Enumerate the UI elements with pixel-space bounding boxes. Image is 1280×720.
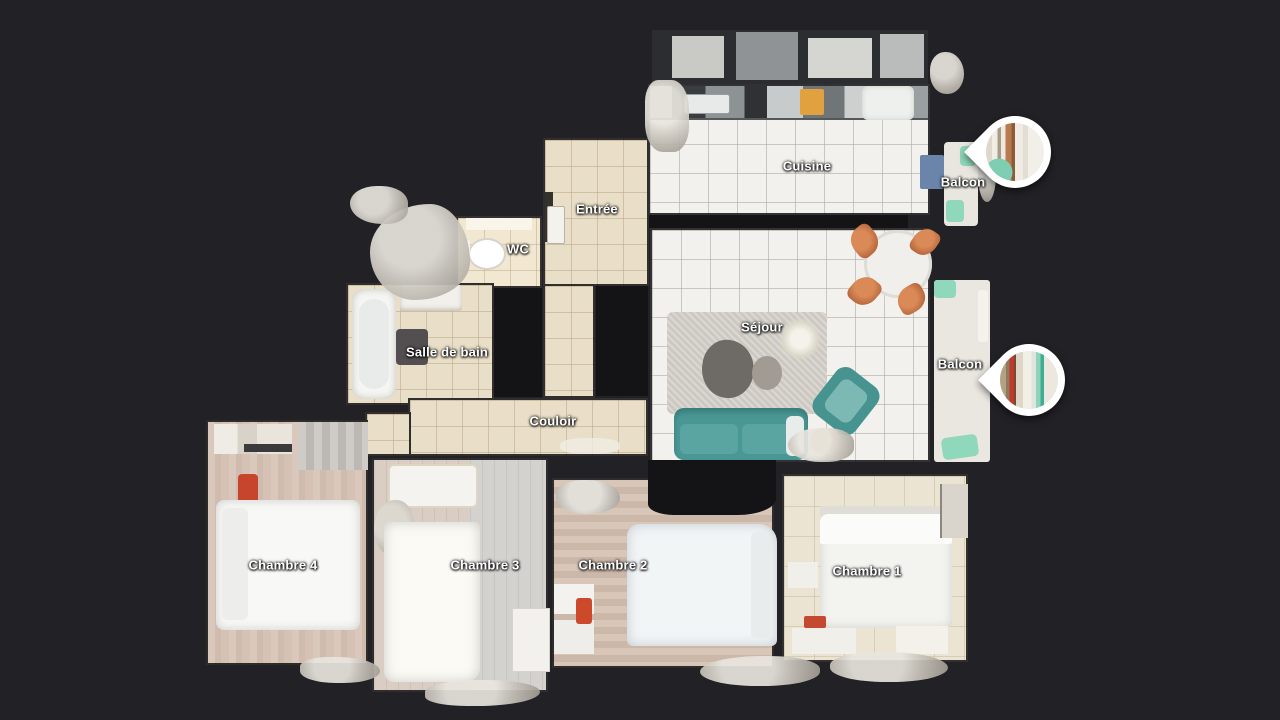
sofa-cushion xyxy=(742,424,792,454)
room-label-chambre-4: Chambre 4 xyxy=(249,558,318,573)
room-label-cuisine: Cuisine xyxy=(783,159,831,174)
bathtub-basin xyxy=(359,299,389,389)
room-label-salle-de-bain: Salle de bain xyxy=(406,345,488,360)
entry-mirror xyxy=(547,206,565,244)
room-couloir[interactable] xyxy=(408,398,648,456)
room-label-chambre-2: Chambre 2 xyxy=(579,558,648,573)
floorplan-viewport[interactable]: Cuisine Balcon Entrée WC Salle de bain S… xyxy=(0,0,1280,720)
balcony-mint-fragment xyxy=(946,200,964,222)
wardrobe xyxy=(298,422,368,470)
mesh-fragment xyxy=(788,428,854,462)
wall-hall-right xyxy=(596,282,648,396)
red-accent xyxy=(576,598,592,624)
balcony-mint-fragment xyxy=(934,280,956,298)
room-label-chambre-3: Chambre 3 xyxy=(451,558,520,573)
sofa-cushion xyxy=(680,424,738,454)
bed-pillow xyxy=(222,508,248,620)
hall-strip[interactable] xyxy=(543,286,595,398)
room-label-sejour: Séjour xyxy=(741,320,783,335)
room-label-chambre-1: Chambre 1 xyxy=(833,564,902,579)
wardrobe xyxy=(940,484,968,538)
floor-fragment xyxy=(560,438,620,454)
shelf-dark-streak xyxy=(244,444,292,452)
balcony-mint-fragment xyxy=(941,434,980,461)
mesh-fragment xyxy=(930,52,964,94)
nightstand xyxy=(788,562,818,588)
room-cuisine[interactable] xyxy=(648,84,930,215)
desk xyxy=(554,620,594,654)
toilet xyxy=(468,238,506,270)
mesh-fragment xyxy=(645,80,689,152)
room-label-balcon: Balcon xyxy=(938,357,983,372)
wall-sejour-chambre2 xyxy=(648,460,776,515)
bathtub xyxy=(352,289,396,399)
cabinet-block xyxy=(808,38,872,78)
mesh-fragment xyxy=(830,652,948,682)
cutting-board xyxy=(800,89,824,115)
mesh-fragment xyxy=(556,480,620,514)
pin-photo-thumbnail xyxy=(986,123,1044,181)
sofa xyxy=(674,408,808,460)
room-chambre-3[interactable] xyxy=(372,458,548,692)
room-chambre-4[interactable] xyxy=(206,420,368,665)
cabinet-block xyxy=(736,32,798,80)
cabinet-block xyxy=(672,36,724,78)
balcony-rail-fragment xyxy=(978,290,988,342)
room-label-entree: Entrée xyxy=(576,202,618,217)
room-label-wc: WC xyxy=(507,242,529,257)
pano-pin-balcon-haut[interactable] xyxy=(979,116,1051,188)
kitchen-table xyxy=(862,86,914,120)
room-sejour[interactable] xyxy=(650,228,930,462)
coffee-table-light xyxy=(752,356,782,390)
plant-bouquet xyxy=(778,318,822,360)
mesh-fragment xyxy=(700,656,820,686)
kitchen-upper-cabinets xyxy=(652,30,928,84)
bed xyxy=(384,522,480,682)
bench xyxy=(792,628,856,654)
wardrobe xyxy=(512,608,550,672)
bed-pillow xyxy=(751,532,771,638)
kitchen-sink xyxy=(684,94,730,114)
mesh-fragment xyxy=(300,657,380,683)
bench xyxy=(896,626,948,654)
mesh-fragment xyxy=(350,186,408,224)
armchair-seat xyxy=(822,376,871,426)
cabinet-block xyxy=(880,34,924,78)
mesh-fragment xyxy=(425,680,540,706)
bed xyxy=(627,524,777,646)
wall-bath-hall xyxy=(494,285,542,397)
red-accent xyxy=(804,616,826,628)
bed-pillows xyxy=(820,514,952,544)
pin-photo-thumbnail xyxy=(1000,351,1058,409)
pano-pin-balcon[interactable] xyxy=(993,344,1065,416)
room-label-couloir: Couloir xyxy=(530,414,577,429)
couloir-west-patch[interactable] xyxy=(365,412,411,456)
wc-shelf xyxy=(466,218,532,230)
